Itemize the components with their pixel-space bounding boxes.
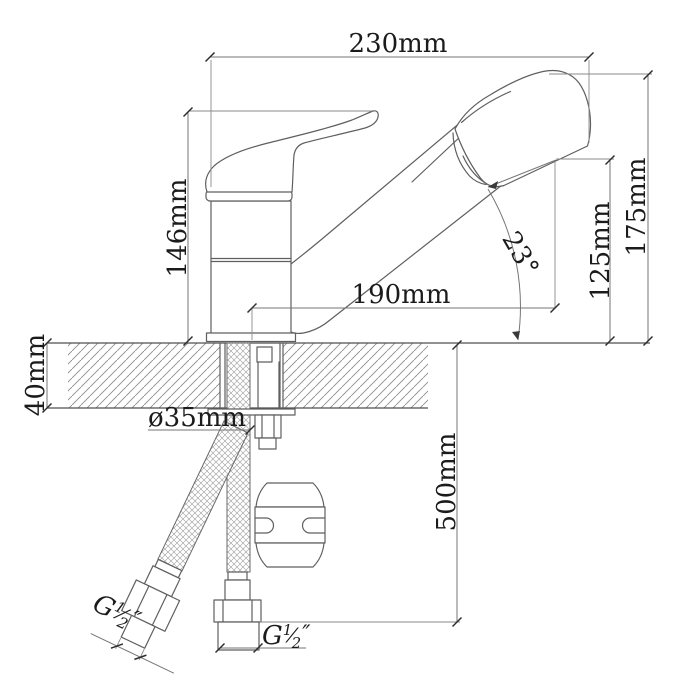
faucet-technical-drawing: G1⁄2″ 230mm 146mm [0, 0, 700, 700]
dimension-40mm: 40mm [21, 334, 52, 416]
spray-hose-fitting [214, 572, 261, 650]
dim-label-230mm: 230mm [349, 29, 448, 59]
dimension-125mm: 125mm [556, 156, 616, 346]
supply-hose-fitting: G1⁄2″ [80, 543, 216, 678]
drawing-canvas: G1⁄2″ 230mm 146mm [0, 0, 700, 700]
dim-label-125mm: 125mm [586, 202, 616, 301]
spray-head-shell [455, 71, 591, 187]
spray-head [453, 71, 591, 187]
handle-lever [206, 111, 379, 192]
spray-hose-thread [218, 622, 259, 650]
spout-bottom-edge [291, 185, 502, 333]
body-column [211, 201, 291, 334]
dim-label-190mm: 190mm [352, 280, 451, 310]
countertop-hatch-right [283, 343, 428, 408]
countertop-hatch-left [68, 343, 220, 408]
dim-label-hole: ø35mm [148, 403, 246, 433]
spray-hose-nut [214, 600, 261, 622]
dimension-hole-35mm: ø35mm [148, 403, 255, 435]
base-flange [207, 333, 296, 342]
hose-weight [255, 483, 325, 567]
countertop-section [47, 343, 650, 408]
stud-end [259, 438, 276, 449]
thread-label-bottom: G1⁄2″ [262, 621, 311, 652]
dim-label-23deg: 23° [495, 227, 544, 282]
dim-label-500mm: 500mm [432, 433, 462, 532]
dim-label-175mm: 175mm [622, 158, 652, 257]
dim-label-146mm: 146mm [163, 179, 193, 278]
threaded-stud-top [257, 347, 272, 362]
angle-arrow-bottom [512, 331, 520, 340]
mounting-nut [255, 415, 281, 438]
weight-top [256, 483, 324, 507]
weight-band [255, 507, 325, 543]
dim-label-40mm: 40mm [21, 334, 51, 416]
weight-bottom [256, 543, 324, 567]
